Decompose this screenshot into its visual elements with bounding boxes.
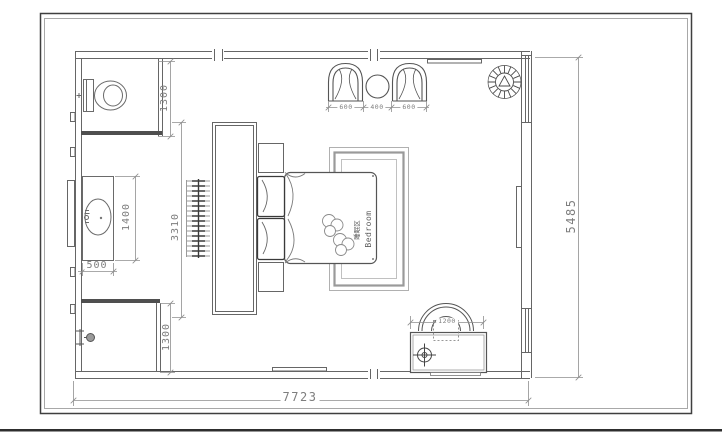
dim-armchair-left: 600	[337, 104, 354, 111]
floor-plan-drawing	[0, 0, 722, 438]
dim-vanity-width: 500	[84, 261, 109, 271]
dim-overall-height: 5485	[565, 199, 577, 234]
armchair-right	[393, 64, 427, 102]
wardrobe-cabinet	[213, 123, 257, 315]
armchair-left	[329, 64, 363, 102]
bed-pillows	[258, 177, 285, 260]
dim-armchair-right: 600	[400, 104, 417, 111]
dim-wardrobe: 3310	[171, 213, 181, 241]
dim-tea-table: 400	[368, 104, 385, 111]
dim-vanity-length: 1400	[122, 203, 132, 231]
window-wall	[517, 51, 532, 378]
bottom-rule	[0, 429, 722, 432]
bedside-table-top	[259, 144, 284, 173]
dim-desk-width: 1200	[436, 318, 458, 325]
desk	[411, 333, 487, 376]
dim-overall-width: 7723	[281, 391, 320, 403]
plant	[488, 66, 521, 99]
room-label-en: Bedroom	[365, 210, 373, 247]
bed	[258, 173, 377, 264]
tea-table	[366, 75, 389, 98]
floor-plan-canvas: 1300 3310 1400 500 1300 600 400 600 1200…	[0, 0, 722, 438]
dim-toilet-zone: 1300	[160, 84, 170, 112]
vanity-counter	[83, 177, 114, 261]
room-label-zh: 睡眠区	[354, 220, 361, 240]
toilet	[77, 80, 127, 112]
shower-head	[76, 329, 95, 346]
bedside-table-bottom	[259, 263, 284, 292]
dim-shower-zone: 1300	[162, 323, 172, 351]
wardrobe-rail-hatch	[187, 179, 211, 258]
